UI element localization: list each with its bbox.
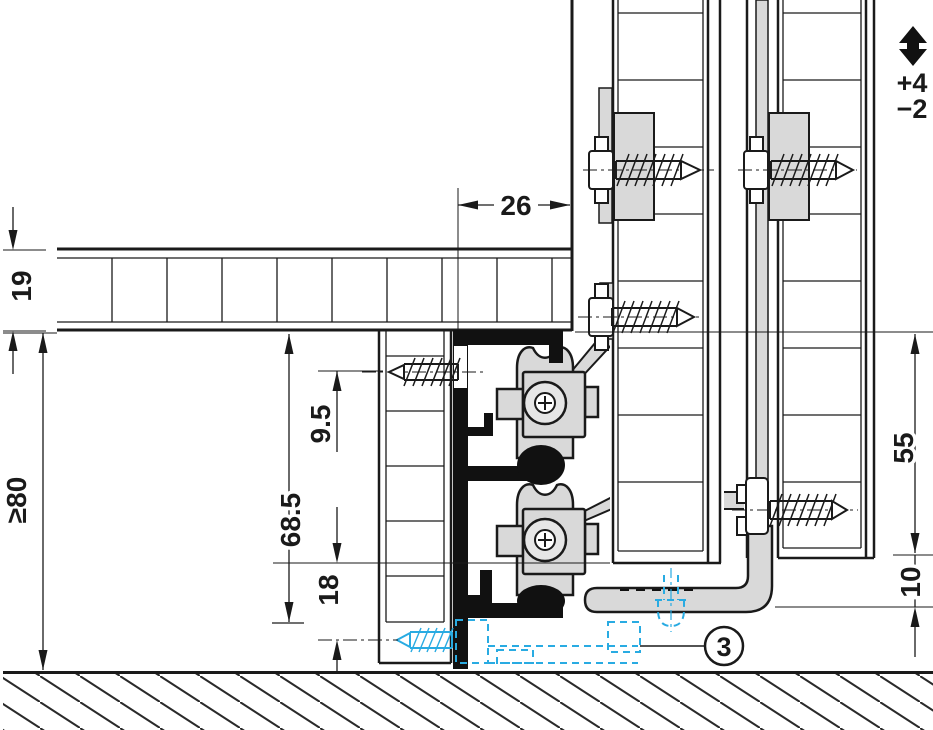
lower-roller: [497, 509, 598, 574]
dim-68-5-label: 68.5: [275, 493, 306, 548]
dim-26-label: 26: [500, 190, 531, 221]
left-door: [572, 0, 724, 563]
adjust-minus-label: −2: [897, 94, 928, 124]
roller-right-tab: [585, 387, 598, 417]
dim-18-label: 18: [313, 574, 344, 605]
dimension-9-5: 9.5: [305, 371, 383, 452]
guide-plate-dashed: [608, 622, 640, 652]
dim-19-label: 19: [6, 270, 37, 301]
hanger-knob: [750, 137, 763, 152]
dimension-10: 10: [775, 555, 933, 657]
right-door-guide-strip: [756, 0, 768, 545]
dimension-68-5: 68.5: [272, 334, 306, 623]
track-bottom-stop: [517, 585, 565, 617]
vertical-adjust-arrow-icon: [899, 26, 927, 66]
roller-right-tab: [585, 524, 598, 554]
guide-bolt-dashed: [655, 568, 687, 632]
roller-left-tab: [497, 389, 523, 419]
callout-label: 3: [716, 632, 731, 662]
hanger-knob: [595, 137, 608, 152]
dim-min80-label: ≥80: [1, 477, 32, 524]
dim-9-5-label: 9.5: [305, 405, 336, 444]
dim-10-label: 10: [895, 566, 926, 597]
fitting-cross-section-drawing: 3 19 ≥80 9.5 68.5 18: [0, 0, 933, 730]
shelf-panel: [57, 249, 572, 330]
guide-fixing-screw-cyan: [397, 628, 453, 652]
technical-drawing-page: 3 19 ≥80 9.5 68.5 18: [0, 0, 933, 730]
floor-hatch: [3, 674, 933, 730]
height-adjustment: +4 −2: [897, 26, 928, 124]
upper-roller: [497, 372, 598, 437]
callout-3: 3: [640, 627, 743, 665]
hanger-knob: [595, 284, 608, 299]
roller-left-tab: [497, 526, 523, 556]
dimension-min80: ≥80: [1, 333, 57, 670]
dim-55-label: 55: [888, 432, 919, 463]
right-door: [744, 0, 882, 558]
track-top-hook: [549, 345, 563, 363]
dimension-26: 26: [458, 188, 570, 330]
floor: [3, 673, 933, 730]
track-mid-stop: [517, 445, 565, 485]
